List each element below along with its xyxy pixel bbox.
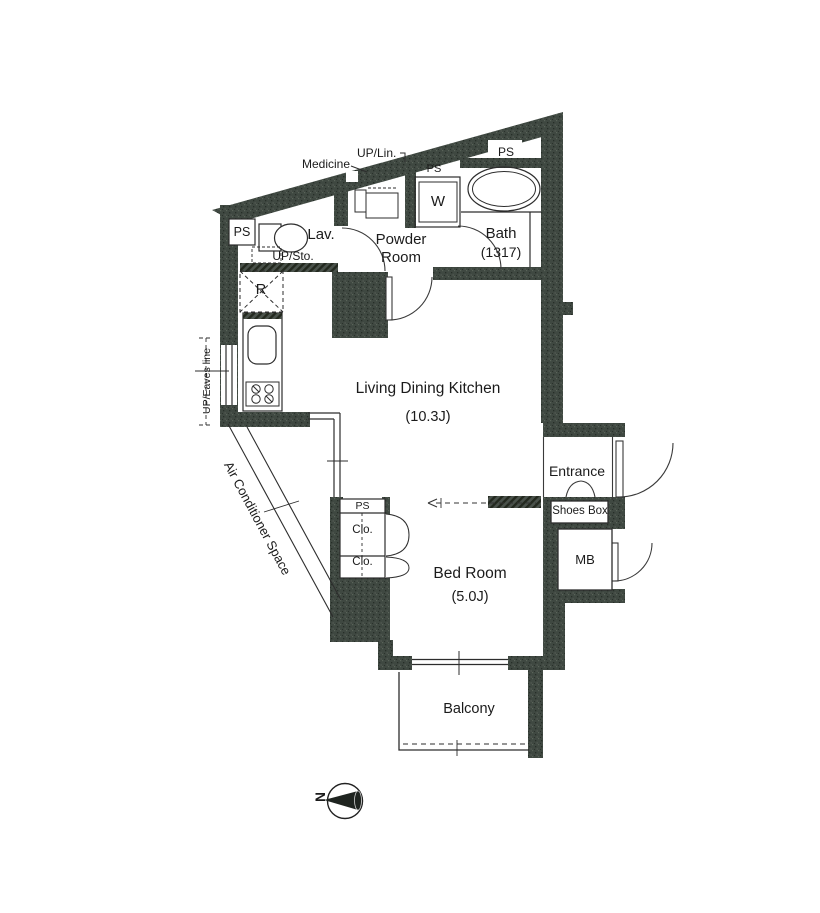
closet-bifold-doors [386, 514, 409, 578]
room-label-bath: Bath [477, 224, 525, 242]
wall-left-of-washer [405, 170, 416, 228]
shoes-box-label: Shoes Box [552, 504, 608, 520]
compass [324, 784, 363, 819]
room-label-powder-line1: Powder [368, 231, 434, 248]
compass-north-label: N [313, 789, 329, 805]
room-label-ldk: Living Dining Kitchen [348, 380, 508, 398]
ldk-corner-window [308, 413, 348, 497]
medicine-notch [346, 171, 358, 182]
ps-label-closet: PS [341, 500, 384, 512]
room-size-bath: (1317) [470, 243, 532, 260]
wall-bedroom-left-block [330, 578, 390, 642]
room-label-lavatory: Lav. [300, 225, 342, 243]
room-label-entrance: Entrance [544, 462, 610, 479]
wall-bottom-left [220, 412, 310, 427]
refrigerator-label: R [249, 281, 273, 300]
ac-space-lines [228, 424, 341, 617]
wall-bedroom-bottom-right [508, 656, 565, 670]
wall-balcony-right [528, 670, 543, 758]
up-linen-label: UP/Lin. [357, 146, 401, 159]
room-label-bedroom: Bed Room [423, 565, 517, 583]
floorplan-drawing [0, 0, 820, 913]
room-label-powder-line2: Room [368, 249, 434, 266]
medicine-label: Medicine [286, 157, 350, 171]
bedroom-window [412, 651, 508, 675]
room-label-balcony: Balcony [441, 701, 497, 718]
floorplan-canvas: Medicine UP/Lin. PS PS PS Lav. UP/Sto. P… [0, 0, 820, 913]
wall-powder-block [332, 272, 388, 338]
wall-bedroom-bottom-left [390, 656, 412, 670]
wall-under-bath [433, 267, 563, 280]
wall-entrance-top [543, 423, 625, 437]
closet-label-1: Clo. [341, 524, 384, 537]
up-storage-label: UP/Sto. [267, 249, 319, 263]
medicine-cabinet-icon [355, 188, 398, 218]
washer-label: W [422, 190, 454, 212]
room-size-ldk: (10.3J) [388, 408, 468, 426]
ps-label-washer: PS [420, 162, 448, 176]
room-size-bedroom: (5.0J) [426, 588, 514, 606]
closet-label-2: Clo. [341, 556, 384, 569]
wall-right-notch [563, 302, 573, 315]
ldk-door [386, 277, 432, 320]
ps-label-lav: PS [229, 223, 255, 241]
wall-ldk-bedroom-hatch [488, 496, 541, 508]
mb-label: MB [560, 551, 610, 568]
kitchen-counter [243, 313, 282, 411]
entrance-step-curves [566, 481, 595, 497]
wall-lav-powder-divider [334, 190, 348, 226]
ps-label-bath: PS [491, 144, 521, 159]
compass-cone-base [355, 791, 362, 810]
mb-door [611, 543, 652, 581]
up-eaves-line-label: UP/Eaves line [201, 339, 213, 423]
